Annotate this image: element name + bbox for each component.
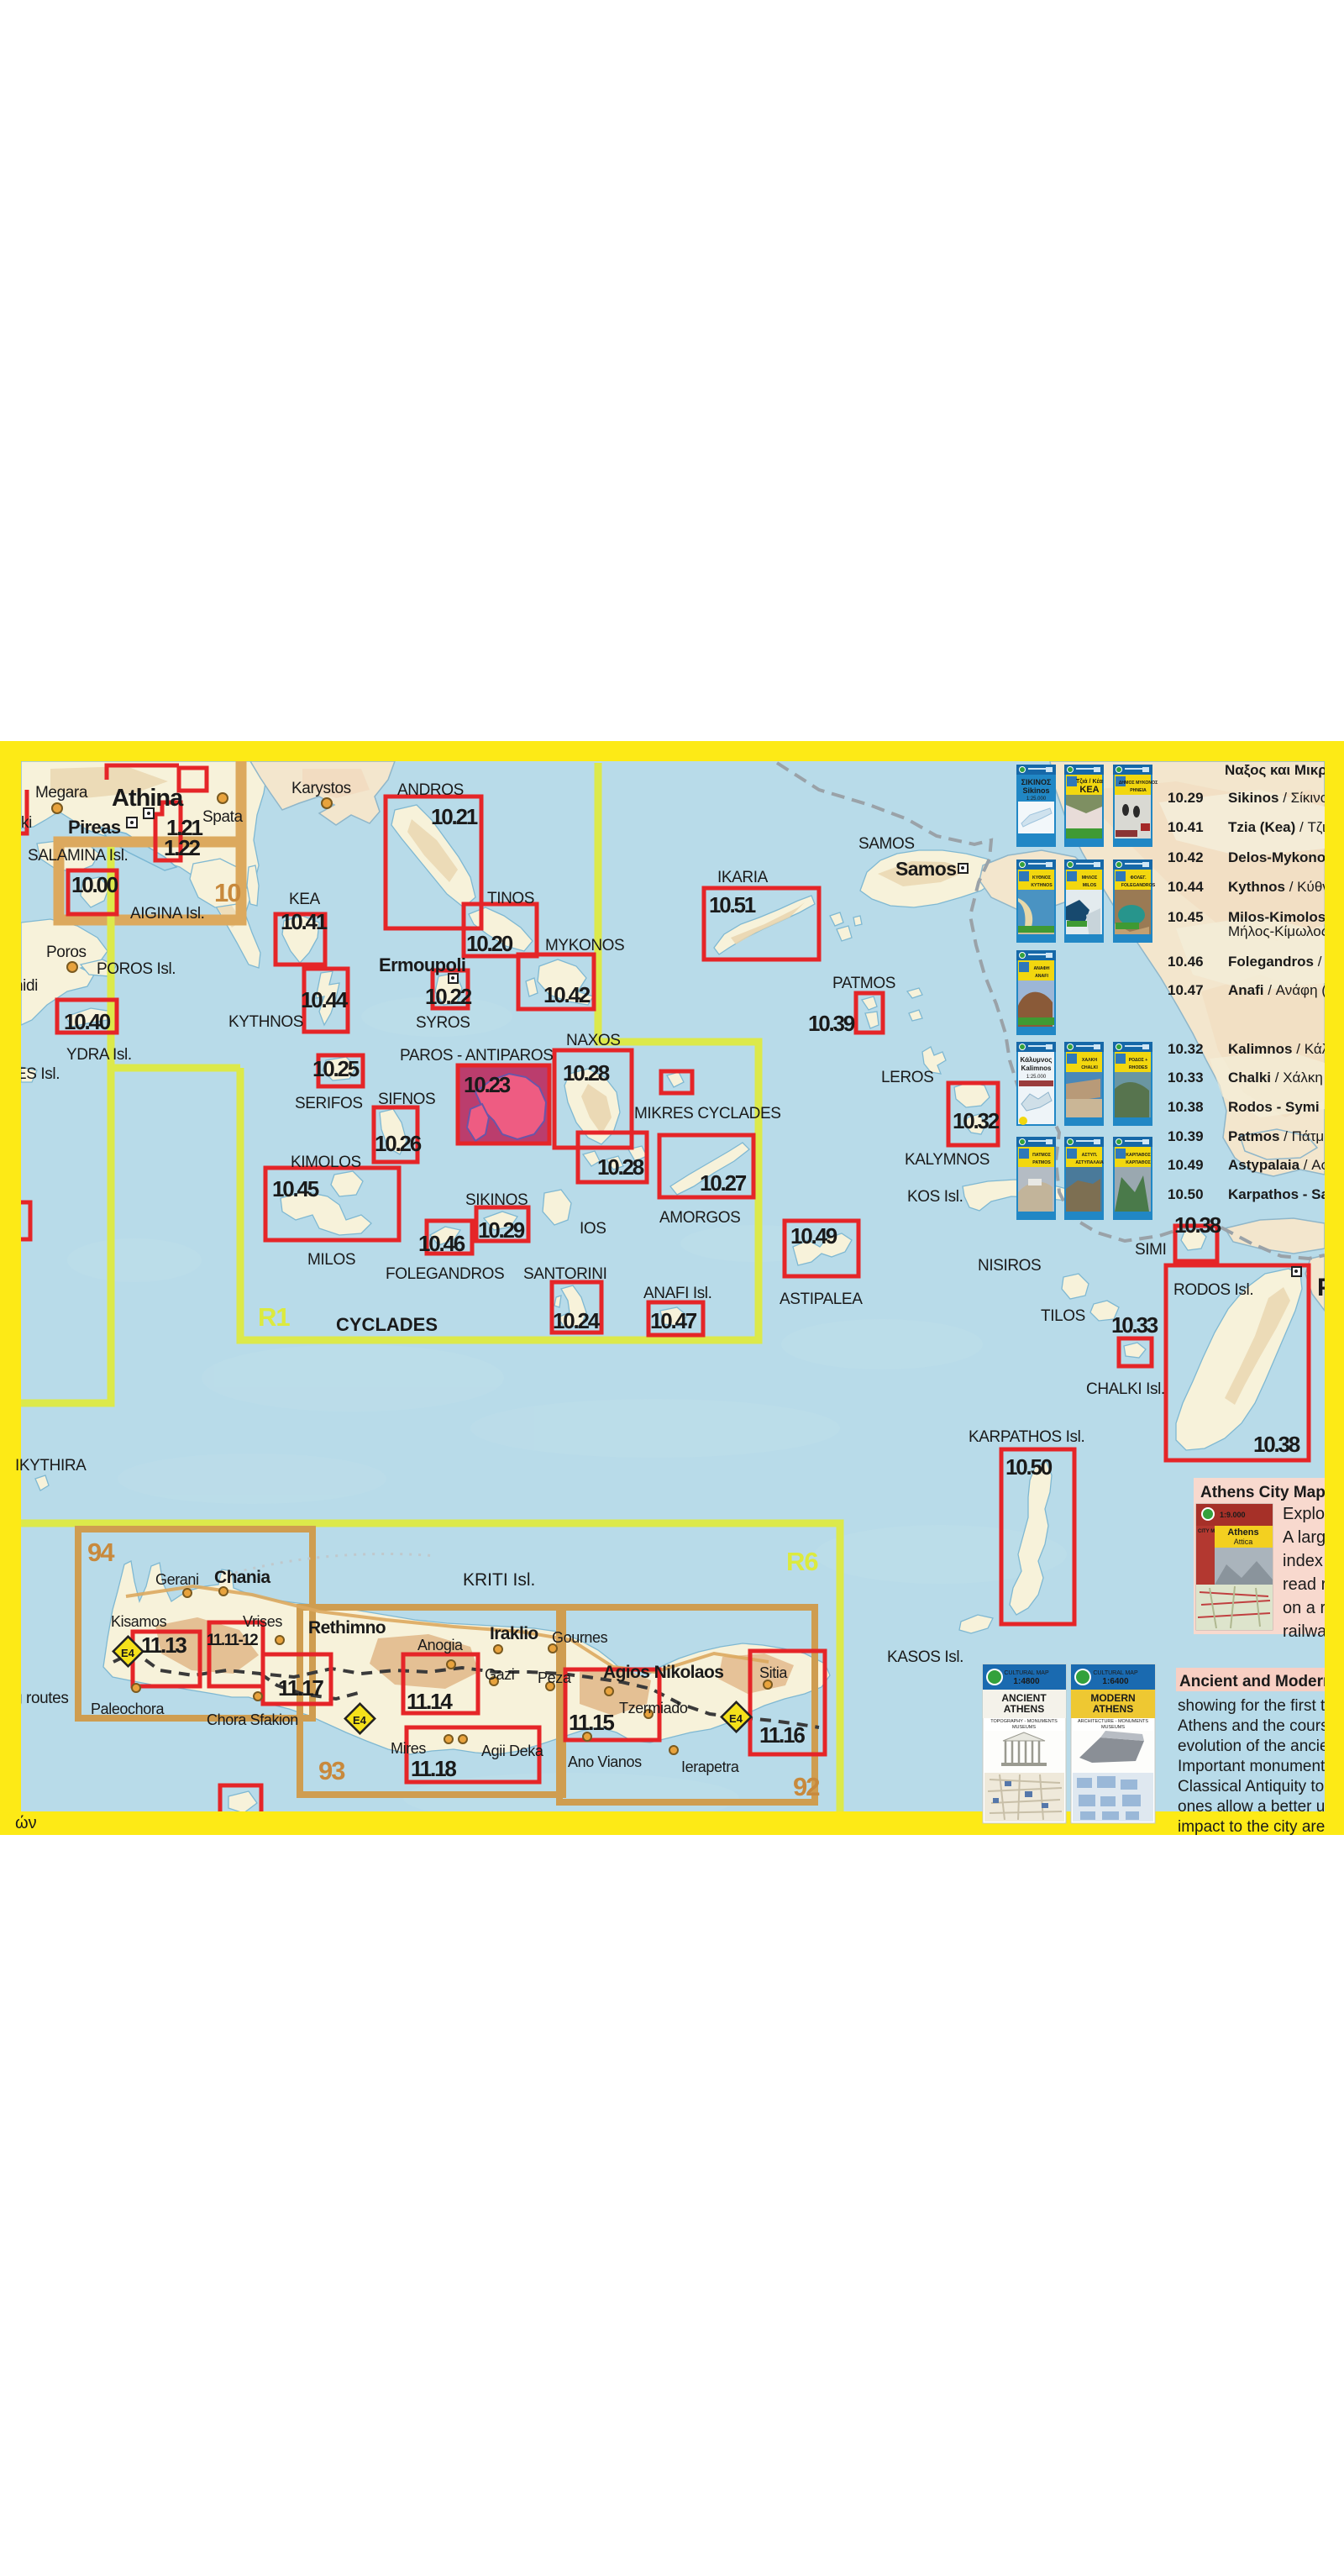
svg-text:Sikinos / Σίκινος: Sikinos / Σίκινος <box>1228 790 1335 806</box>
svg-text:11.14: 11.14 <box>407 1689 453 1714</box>
svg-text:10.39: 10.39 <box>1168 1128 1204 1144</box>
svg-text:showing for the first t: showing for the first t <box>1178 1697 1326 1715</box>
svg-text:ki: ki <box>21 814 32 832</box>
svg-text:evolution of the ancie: evolution of the ancie <box>1178 1737 1329 1755</box>
svg-text:Anogia: Anogia <box>417 1637 464 1653</box>
svg-text:10.45: 10.45 <box>1168 909 1204 925</box>
svg-text:FOLEGANDROS: FOLEGANDROS <box>1121 883 1156 888</box>
svg-text:SYROS: SYROS <box>416 1014 470 1032</box>
svg-text:KEA: KEA <box>289 891 321 908</box>
svg-text:AMORGOS: AMORGOS <box>659 1209 740 1227</box>
svg-text:Agios Nikolaos: Agios Nikolaos <box>603 1663 723 1682</box>
svg-text:Ναξος και Μικρε: Ναξος και Μικρε <box>1225 762 1334 778</box>
svg-text:ΑΣΤΥΠΑΛΑΙΑ: ΑΣΤΥΠΑΛΑΙΑ <box>1075 1160 1104 1165</box>
svg-text:Kisamos: Kisamos <box>111 1613 167 1630</box>
svg-text:ΚΥΘΝΟΣ: ΚΥΘΝΟΣ <box>1032 875 1051 881</box>
svg-text:Vrises: Vrises <box>243 1613 282 1630</box>
svg-text:SIMI: SIMI <box>1135 1241 1166 1259</box>
svg-text:g routes: g routes <box>13 1690 68 1707</box>
svg-text:Folegandros / Φ: Folegandros / Φ <box>1228 954 1337 970</box>
svg-text:10.27: 10.27 <box>700 1170 747 1196</box>
svg-text:SERIFOS: SERIFOS <box>295 1095 363 1112</box>
svg-text:Peza: Peza <box>538 1669 572 1686</box>
svg-text:SANTORINI: SANTORINI <box>523 1265 607 1283</box>
svg-text:IKYTHIRA: IKYTHIRA <box>15 1457 87 1475</box>
svg-text:10.29: 10.29 <box>1168 790 1204 806</box>
svg-text:10.29: 10.29 <box>478 1217 525 1243</box>
svg-text:10.22: 10.22 <box>425 984 472 1009</box>
svg-text:KYTHNOS: KYTHNOS <box>1031 883 1053 888</box>
svg-text:1.22: 1.22 <box>164 835 201 860</box>
svg-text:10.26: 10.26 <box>375 1131 422 1156</box>
svg-text:10.24: 10.24 <box>553 1308 601 1333</box>
svg-text:Poros: Poros <box>46 944 87 961</box>
svg-text:93: 93 <box>318 1756 345 1785</box>
svg-text:ES Isl.: ES Isl. <box>16 1065 60 1083</box>
svg-text:NAXOS: NAXOS <box>566 1032 621 1049</box>
svg-text:10.00: 10.00 <box>71 872 118 897</box>
svg-text:ΧΑΛΚΗ: ΧΑΛΚΗ <box>1082 1058 1097 1063</box>
svg-text:Karpathos - Sa: Karpathos - Sa <box>1228 1186 1330 1202</box>
svg-text:TINOS: TINOS <box>487 890 534 907</box>
svg-text:Athens: Athens <box>1227 1527 1258 1538</box>
svg-text:10.32: 10.32 <box>953 1108 1000 1133</box>
svg-text:MILOS: MILOS <box>1083 883 1097 888</box>
svg-text:10.38: 10.38 <box>1168 1099 1204 1115</box>
svg-text:11.18: 11.18 <box>411 1756 456 1781</box>
svg-text:ΑΝΑΦΗ: ΑΝΑΦΗ <box>1033 966 1049 971</box>
svg-text:11.16: 11.16 <box>759 1722 805 1748</box>
svg-text:ANCIENT: ANCIENT <box>1001 1692 1047 1704</box>
svg-text:10.49: 10.49 <box>1168 1157 1204 1173</box>
svg-text:Gournes: Gournes <box>552 1629 608 1646</box>
svg-text:Kalimnos / Κάλυ: Kalimnos / Κάλυ <box>1228 1041 1336 1057</box>
svg-text:Samos: Samos <box>895 858 956 880</box>
svg-text:Megara: Megara <box>35 784 88 802</box>
svg-text:ATHENS: ATHENS <box>1004 1703 1044 1715</box>
svg-text:ΚΑΡΠΑΘΟΣ: ΚΑΡΠΑΘΟΣ <box>1126 1153 1151 1158</box>
svg-text:ATHENS: ATHENS <box>1093 1703 1133 1715</box>
svg-text:Gerani: Gerani <box>155 1571 199 1588</box>
svg-text:ANAFI Isl.: ANAFI Isl. <box>643 1285 712 1302</box>
svg-text:Chalki / Χάλκη (: Chalki / Χάλκη ( <box>1228 1070 1332 1086</box>
svg-text:Explo: Explo <box>1283 1505 1325 1523</box>
svg-text:Rethimno: Rethimno <box>308 1618 386 1638</box>
svg-text:10.47: 10.47 <box>1168 982 1204 998</box>
svg-text:ών: ών <box>15 1814 37 1832</box>
svg-text:Tzermiado: Tzermiado <box>619 1700 688 1716</box>
svg-text:Tzia (Kea) / Τζιά: Tzia (Kea) / Τζιά <box>1228 819 1334 835</box>
svg-text:10: 10 <box>214 878 240 907</box>
svg-text:read r: read r <box>1283 1575 1327 1594</box>
svg-text:E4: E4 <box>729 1712 743 1725</box>
svg-text:Kythnos / Κύθνο: Kythnos / Κύθνο <box>1228 879 1337 895</box>
svg-text:10.50: 10.50 <box>1005 1454 1053 1480</box>
svg-text:10.23: 10.23 <box>464 1072 511 1097</box>
svg-text:Attica: Attica <box>1234 1538 1253 1546</box>
svg-text:Μήλος-Κίμωλος-: Μήλος-Κίμωλος- <box>1228 923 1333 939</box>
svg-text:KASOS Isl.: KASOS Isl. <box>887 1648 963 1666</box>
svg-text:RHODES: RHODES <box>1129 1065 1148 1070</box>
svg-text:Kalimnos: Kalimnos <box>1021 1065 1052 1072</box>
svg-text:KARPATHOS Isl.: KARPATHOS Isl. <box>969 1428 1084 1446</box>
svg-text:1:6400: 1:6400 <box>1102 1677 1129 1686</box>
svg-text:ΣΙΚΙΝΟΣ: ΣΙΚΙΝΟΣ <box>1021 778 1052 786</box>
svg-text:10.45: 10.45 <box>272 1176 319 1201</box>
svg-text:Κάλυμνος: Κάλυμνος <box>1021 1056 1053 1064</box>
svg-text:ΡΗΝΕΙΑ: ΡΗΝΕΙΑ <box>1130 788 1147 793</box>
svg-text:MODERN: MODERN <box>1090 1692 1135 1704</box>
svg-text:Iraklio: Iraklio <box>490 1624 538 1643</box>
svg-text:ΡΟΔΟΣ +: ΡΟΔΟΣ + <box>1129 1058 1148 1063</box>
svg-text:impact to the city are: impact to the city are <box>1178 1818 1325 1836</box>
svg-text:11.17: 11.17 <box>278 1675 323 1701</box>
svg-text:A larg: A larg <box>1283 1528 1326 1547</box>
svg-text:Chora Sfakion: Chora Sfakion <box>207 1711 298 1728</box>
svg-text:Pireas: Pireas <box>68 817 121 838</box>
svg-text:94: 94 <box>87 1538 115 1567</box>
svg-text:10.49: 10.49 <box>790 1223 837 1249</box>
svg-text:MILOS: MILOS <box>307 1251 355 1269</box>
svg-text:10.51: 10.51 <box>709 892 756 917</box>
svg-text:Ermoupoli: Ermoupoli <box>379 954 465 975</box>
svg-text:11.13: 11.13 <box>141 1632 186 1658</box>
svg-text:1:4800: 1:4800 <box>1013 1677 1040 1686</box>
svg-text:AIGINA Isl.: AIGINA Isl. <box>130 905 205 923</box>
svg-text:ΠΑΤΜΟΣ: ΠΑΤΜΟΣ <box>1032 1153 1051 1158</box>
svg-text:10.42: 10.42 <box>1168 849 1204 865</box>
svg-text:E4: E4 <box>353 1714 367 1727</box>
svg-text:KRITI Isl.: KRITI Isl. <box>463 1570 535 1590</box>
svg-text:10.46: 10.46 <box>1168 954 1204 970</box>
svg-text:R1: R1 <box>258 1302 290 1332</box>
svg-text:10.44: 10.44 <box>301 987 349 1012</box>
svg-text:PATMOS: PATMOS <box>1032 1160 1051 1165</box>
svg-text:Ano Vianos: Ano Vianos <box>568 1753 642 1770</box>
svg-text:Athens City Map (1:: Athens City Map (1: <box>1200 1484 1344 1501</box>
svg-text:10.33: 10.33 <box>1168 1070 1204 1086</box>
svg-text:NISIROS: NISIROS <box>978 1257 1041 1275</box>
svg-text:1:25.000: 1:25.000 <box>1026 1075 1047 1080</box>
svg-text:railwa: railwa <box>1283 1622 1327 1641</box>
svg-text:IKARIA: IKARIA <box>717 869 769 886</box>
svg-text:Sitia: Sitia <box>759 1664 788 1681</box>
svg-text:R6: R6 <box>786 1547 818 1576</box>
svg-text:10.41: 10.41 <box>281 909 328 934</box>
svg-text:92: 92 <box>793 1772 819 1801</box>
svg-text:index: index <box>1283 1552 1323 1570</box>
svg-text:10.38: 10.38 <box>1253 1432 1300 1457</box>
svg-text:Agii Deka: Agii Deka <box>481 1743 544 1759</box>
svg-text:MUSEUMS: MUSEUMS <box>1012 1725 1036 1730</box>
svg-text:Ierapetra: Ierapetra <box>681 1759 740 1775</box>
svg-text:10.38: 10.38 <box>1174 1212 1221 1238</box>
svg-text:MIKRES CYCLADES: MIKRES CYCLADES <box>634 1105 781 1122</box>
svg-text:PAROS - ANTIPAROS: PAROS - ANTIPAROS <box>400 1047 554 1065</box>
svg-text:1:25.000: 1:25.000 <box>1026 796 1047 802</box>
svg-text:ΔΗΜΟΣ ΜΥΚΟΝΟΣ: ΔΗΜΟΣ ΜΥΚΟΝΟΣ <box>1119 781 1158 786</box>
svg-text:KYTHNOS: KYTHNOS <box>228 1013 303 1031</box>
svg-text:ones allow a better ur: ones allow a better ur <box>1178 1798 1331 1816</box>
svg-text:Mires: Mires <box>391 1740 426 1757</box>
svg-text:10.50: 10.50 <box>1168 1186 1204 1202</box>
svg-text:Rodos - Symi: Rodos - Symi <box>1228 1099 1320 1115</box>
svg-text:KOS Isl.: KOS Isl. <box>907 1188 963 1206</box>
svg-text:ANAFI: ANAFI <box>1035 974 1048 979</box>
svg-text:10.44: 10.44 <box>1168 879 1204 895</box>
svg-text:Astypalaia / Αστ: Astypalaia / Αστ <box>1228 1157 1336 1173</box>
svg-text:ARCHITECTURE - MONUMENTS: ARCHITECTURE - MONUMENTS <box>1078 1719 1148 1724</box>
svg-text:TOPOGRAPHY - MONUMENTS: TOPOGRAPHY - MONUMENTS <box>990 1719 1058 1724</box>
svg-text:10.42: 10.42 <box>543 982 591 1007</box>
svg-text:PATMOS: PATMOS <box>832 975 895 992</box>
svg-text:Chania: Chania <box>214 1568 270 1587</box>
svg-text:1:9.000: 1:9.000 <box>1220 1511 1246 1519</box>
svg-text:ANDROS: ANDROS <box>397 781 464 799</box>
svg-text:CHALKI Isl.: CHALKI Isl. <box>1086 1380 1165 1398</box>
svg-text:on a r: on a r <box>1283 1599 1326 1617</box>
svg-text:Spata: Spata <box>202 808 243 826</box>
svg-text:CHALKI: CHALKI <box>1081 1065 1098 1070</box>
svg-text:Classical Antiquity to I: Classical Antiquity to I <box>1178 1778 1333 1795</box>
svg-text:MUSEUMS: MUSEUMS <box>1101 1725 1125 1730</box>
svg-text:IOS: IOS <box>580 1220 606 1238</box>
svg-text:10.28: 10.28 <box>597 1154 644 1180</box>
svg-text:11.15: 11.15 <box>569 1710 614 1735</box>
svg-text:Gazi: Gazi <box>485 1666 514 1683</box>
svg-text:SIKINOS: SIKINOS <box>465 1191 528 1209</box>
svg-text:YDRA Isl.: YDRA Isl. <box>66 1046 132 1064</box>
svg-text:ΚΕΑ: ΚΕΑ <box>1079 785 1099 795</box>
svg-text:10.40: 10.40 <box>64 1009 111 1034</box>
svg-text:CULTURAL MAP: CULTURAL MAP <box>1093 1670 1138 1676</box>
svg-text:10.25: 10.25 <box>312 1056 360 1081</box>
svg-text:10.28: 10.28 <box>563 1060 610 1086</box>
svg-text:CULTURAL MAP: CULTURAL MAP <box>1004 1670 1049 1676</box>
svg-text:FOLEGANDROS: FOLEGANDROS <box>386 1265 504 1283</box>
svg-text:LEROS: LEROS <box>881 1069 933 1086</box>
svg-text:Delos-Mykonos: Delos-Mykonos <box>1228 849 1334 865</box>
svg-text:Important monument: Important monument <box>1178 1758 1326 1775</box>
svg-text:ASTIPALEA: ASTIPALEA <box>780 1291 863 1308</box>
svg-text:ΚΑΡΠΑΘΟΣ: ΚΑΡΠΑΘΟΣ <box>1126 1160 1151 1165</box>
svg-text:SALAMINA Isl.: SALAMINA Isl. <box>28 847 128 865</box>
svg-text:10.41: 10.41 <box>1168 819 1204 835</box>
svg-text:POROS Isl.: POROS Isl. <box>97 960 176 978</box>
svg-text:ΜΗΛΟΣ: ΜΗΛΟΣ <box>1082 875 1098 881</box>
svg-text:CYCLADES: CYCLADES <box>336 1314 438 1335</box>
svg-text:Athina: Athina <box>112 785 184 812</box>
svg-text:10.47: 10.47 <box>650 1308 697 1333</box>
svg-text:Ancient and Modern: Ancient and Modern <box>1179 1673 1333 1690</box>
svg-text:E4: E4 <box>121 1647 135 1659</box>
svg-text:RODOS Isl.: RODOS Isl. <box>1173 1281 1253 1299</box>
svg-text:Athens and the course: Athens and the course <box>1178 1717 1337 1735</box>
svg-text:Paleochora: Paleochora <box>91 1701 165 1717</box>
svg-text:Patmos / Πάτμο: Patmos / Πάτμο <box>1228 1128 1332 1144</box>
svg-text:Karystos: Karystos <box>291 780 351 797</box>
svg-text:ΑΣΤΥΠ.: ΑΣΤΥΠ. <box>1082 1153 1098 1158</box>
svg-text:10.46: 10.46 <box>418 1231 465 1256</box>
svg-text:10.32: 10.32 <box>1168 1041 1204 1057</box>
svg-text:Sikinos: Sikinos <box>1022 786 1049 795</box>
svg-text:SIFNOS: SIFNOS <box>378 1091 435 1108</box>
svg-text:10.20: 10.20 <box>466 931 513 956</box>
svg-text:TILOS: TILOS <box>1041 1307 1085 1325</box>
svg-text:Anafi / Ανάφη (1: Anafi / Ανάφη (1 <box>1228 982 1334 998</box>
svg-text:ΦΟΛΕΓ.: ΦΟΛΕΓ. <box>1130 875 1147 881</box>
svg-text:11.11-12: 11.11-12 <box>207 1632 258 1649</box>
svg-text:10.21: 10.21 <box>431 804 478 829</box>
svg-text:KALYMNOS: KALYMNOS <box>905 1151 990 1169</box>
svg-text:MYKONOS: MYKONOS <box>545 937 624 954</box>
svg-text:KIMOLOS: KIMOLOS <box>291 1154 361 1171</box>
svg-text:10.33: 10.33 <box>1111 1312 1158 1338</box>
svg-text:SAMOS: SAMOS <box>858 835 915 853</box>
svg-text:Τζιά / Κέα: Τζιά / Κέα <box>1076 779 1104 785</box>
svg-text:10.39: 10.39 <box>808 1011 855 1036</box>
